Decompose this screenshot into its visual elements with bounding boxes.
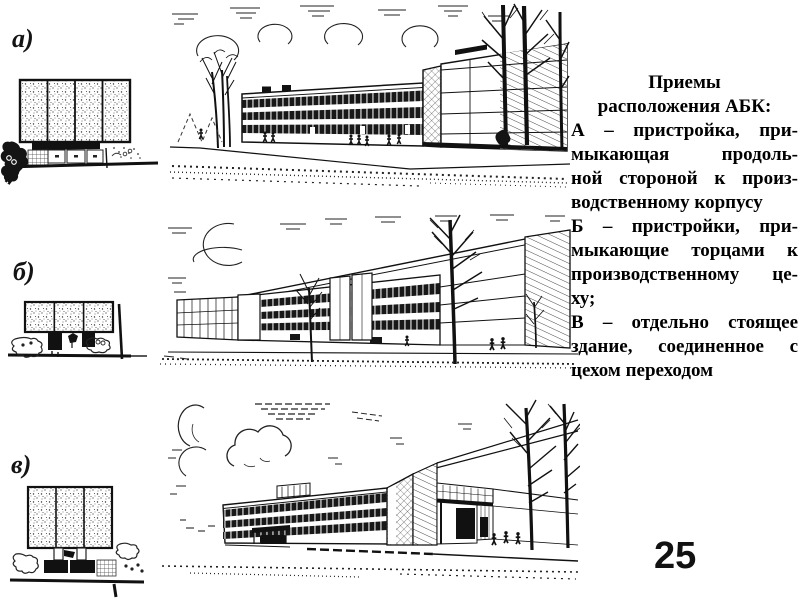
- hall-corner: [413, 463, 437, 545]
- vehicle: [260, 535, 286, 544]
- figure-label-a: а): [12, 26, 34, 52]
- bridge-passage: [437, 483, 493, 544]
- ground-line: [168, 352, 578, 354]
- figure-label-b: б): [13, 259, 35, 285]
- building-sketch: [242, 44, 567, 151]
- production-building-plan: [20, 80, 130, 142]
- end-wall-stripes: [177, 294, 260, 340]
- caption-line: Б – пристройки, при-: [571, 215, 798, 239]
- hatched-end-wall: [525, 230, 570, 348]
- caption-line: А – пристройка, при-: [571, 119, 798, 143]
- page-number: 25: [654, 537, 696, 575]
- slide-page: а) б) в): [0, 0, 800, 600]
- perspective-v-illustration: [160, 398, 580, 583]
- passage-connectors: [54, 548, 86, 560]
- rooftop-box: [262, 87, 271, 93]
- grass-stipple: [162, 566, 578, 579]
- ground-line: [170, 147, 570, 169]
- caption-title-line: Приемы: [571, 71, 798, 95]
- caption-title-line: расположения АБК:: [571, 95, 798, 119]
- bare-trees: [504, 400, 580, 550]
- production-building-plan: [25, 302, 113, 332]
- caption-title: Приемырасположения АБК:: [571, 71, 798, 119]
- hall-roofline: [413, 431, 578, 474]
- figure-label-v: в): [11, 452, 31, 478]
- caption-line: мыкающая продоль-: [571, 143, 798, 167]
- caption-block: Приемырасположения АБК: А – пристройка, …: [571, 71, 798, 383]
- people-figures: [492, 531, 521, 545]
- caption-line: производственному це-: [571, 263, 798, 287]
- caption-line: цехом переходом: [571, 359, 798, 383]
- plan-v-diagram: [8, 476, 158, 600]
- caption-line: В – отдельно стоящее: [571, 311, 798, 335]
- caption-line: ху;: [571, 287, 798, 311]
- grass-stipple: [170, 166, 567, 187]
- caption-line: здание, соединенное с: [571, 335, 798, 359]
- grass-stipple: [160, 356, 578, 368]
- plan-b-diagram: [5, 291, 155, 373]
- ground-line: [10, 580, 144, 597]
- caption-body: А – пристройка, при-мыкающая продоль-ной…: [571, 119, 798, 383]
- hall-roofline: [437, 420, 578, 463]
- rooftop-box: [282, 85, 291, 91]
- production-building-plan: [28, 487, 112, 548]
- perspective-b-illustration: [160, 212, 580, 372]
- caption-line: ной стороной к произ-: [571, 167, 798, 191]
- building-sketch: [177, 230, 570, 348]
- rooftop-penthouse: [277, 483, 310, 498]
- abk-blocks-plan: [44, 560, 116, 576]
- caption-line: водственному корпусу: [571, 191, 798, 215]
- perspective-a-illustration: [170, 0, 570, 190]
- hatched-stair-tower: [423, 66, 441, 147]
- plan-a-diagram: [0, 66, 160, 198]
- caption-line: мыкающие торцами к: [571, 239, 798, 263]
- ground-line: [5, 163, 158, 183]
- building-sketch: [223, 420, 578, 545]
